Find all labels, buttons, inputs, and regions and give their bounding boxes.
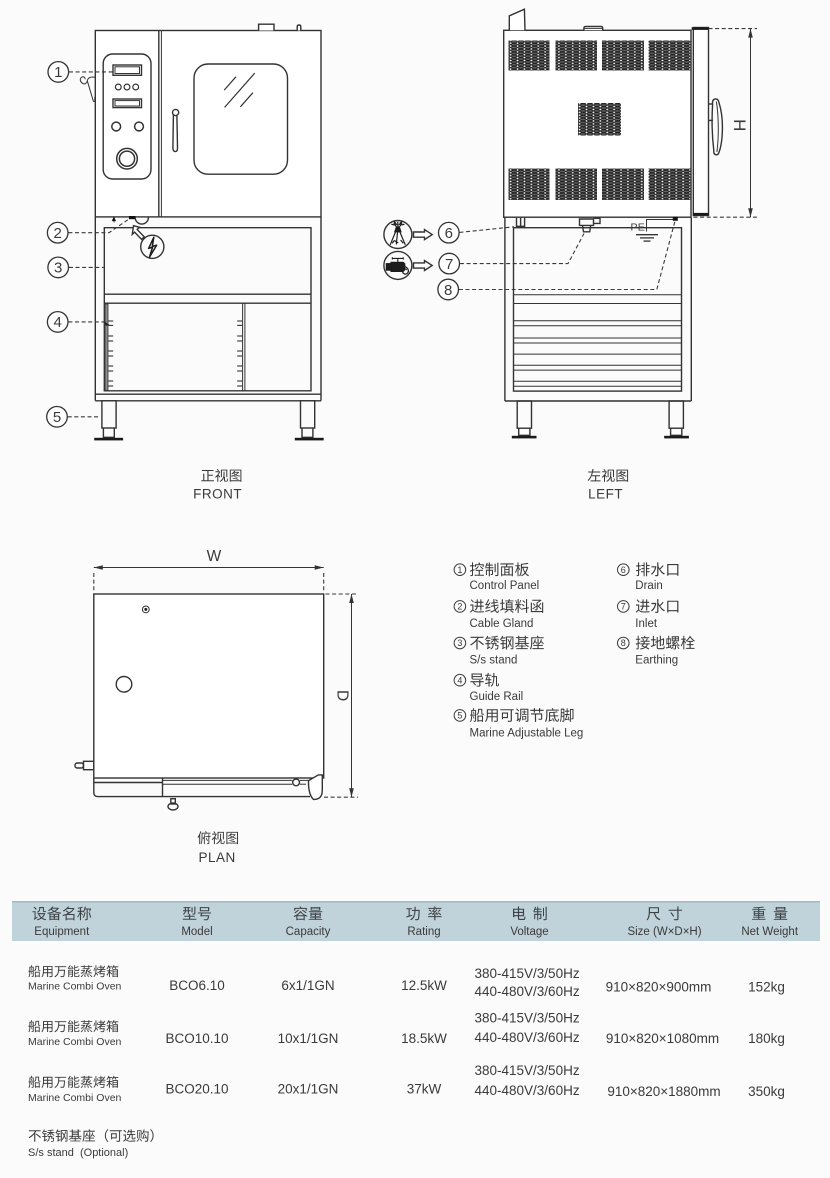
svg-text:LEFT: LEFT [588,486,623,501]
svg-text:PE: PE [631,221,646,233]
svg-text:BCO20.10: BCO20.10 [165,1082,228,1097]
svg-text:1: 1 [457,565,462,575]
svg-text:W: W [207,548,222,565]
svg-text:5: 5 [53,409,61,426]
svg-text:Model: Model [181,926,212,938]
svg-text:Voltage: Voltage [510,926,548,938]
svg-text:FRONT: FRONT [193,486,242,501]
svg-text:12.5kW: 12.5kW [401,978,447,993]
svg-text:D: D [333,690,350,701]
svg-text:7: 7 [621,602,626,612]
svg-text:PLAN: PLAN [198,850,235,865]
svg-text:S/s stand: S/s stand [470,655,518,667]
svg-text:7: 7 [445,256,453,273]
svg-text:H: H [730,119,749,131]
svg-text:6: 6 [621,565,626,575]
svg-text:Marine Combi Oven: Marine Combi Oven [28,1092,122,1104]
svg-text:8: 8 [621,638,626,648]
svg-text:Capacity: Capacity [286,926,331,938]
svg-text:2: 2 [54,225,62,242]
svg-text:6x1/1GN: 6x1/1GN [281,978,334,993]
svg-text:380-415V/3/50Hz: 380-415V/3/50Hz [475,1063,580,1078]
svg-text:Marine Combi Oven: Marine Combi Oven [28,1036,122,1048]
svg-text:910×820×1080mm: 910×820×1080mm [606,1031,719,1046]
svg-text:S/s stand (Optional): S/s stand (Optional) [28,1147,128,1159]
svg-text:Marine Adjustable Leg: Marine Adjustable Leg [470,727,584,739]
svg-text:BCO10.10: BCO10.10 [165,1031,228,1046]
svg-text:Equipment: Equipment [34,926,90,938]
svg-text:BCO6.10: BCO6.10 [169,978,225,993]
svg-text:910×820×900mm: 910×820×900mm [606,979,712,994]
svg-text:4: 4 [54,314,62,331]
svg-text:Rating: Rating [407,926,440,938]
svg-text:20x1/1GN: 20x1/1GN [278,1082,339,1097]
svg-text:2: 2 [457,602,462,612]
svg-text:440-480V/3/60Hz: 440-480V/3/60Hz [475,984,580,999]
svg-text:4: 4 [457,675,462,685]
svg-text:Inlet: Inlet [635,618,658,630]
svg-text:5: 5 [457,711,462,721]
svg-text:Drain: Drain [635,580,662,592]
svg-text:Size (W×D×H): Size (W×D×H) [627,926,701,938]
svg-text:440-480V/3/60Hz: 440-480V/3/60Hz [475,1030,580,1045]
svg-text:3: 3 [457,638,462,648]
svg-text:18.5kW: 18.5kW [401,1031,447,1046]
svg-text:Control Panel: Control Panel [470,580,540,592]
svg-text:Cable Gland: Cable Gland [470,618,534,630]
svg-text:Marine Combi Oven: Marine Combi Oven [28,981,122,993]
svg-text:Earthing: Earthing [635,655,678,667]
svg-text:440-480V/3/60Hz: 440-480V/3/60Hz [475,1083,580,1098]
svg-text:Guide Rail: Guide Rail [470,691,524,703]
svg-text:350kg: 350kg [748,1084,785,1099]
svg-text:180kg: 180kg [748,1031,785,1046]
svg-text:1: 1 [54,64,62,81]
svg-text:380-415V/3/50Hz: 380-415V/3/50Hz [475,1010,580,1025]
svg-text:Net Weight: Net Weight [741,926,798,938]
svg-text:37kW: 37kW [407,1082,442,1097]
svg-text:8: 8 [444,282,452,299]
svg-text:6: 6 [445,225,453,242]
svg-text:380-415V/3/50Hz: 380-415V/3/50Hz [475,966,580,981]
svg-text:910×820×1880mm: 910×820×1880mm [607,1084,720,1099]
svg-text:10x1/1GN: 10x1/1GN [278,1031,339,1046]
svg-text:3: 3 [54,260,62,277]
svg-text:152kg: 152kg [748,979,785,994]
